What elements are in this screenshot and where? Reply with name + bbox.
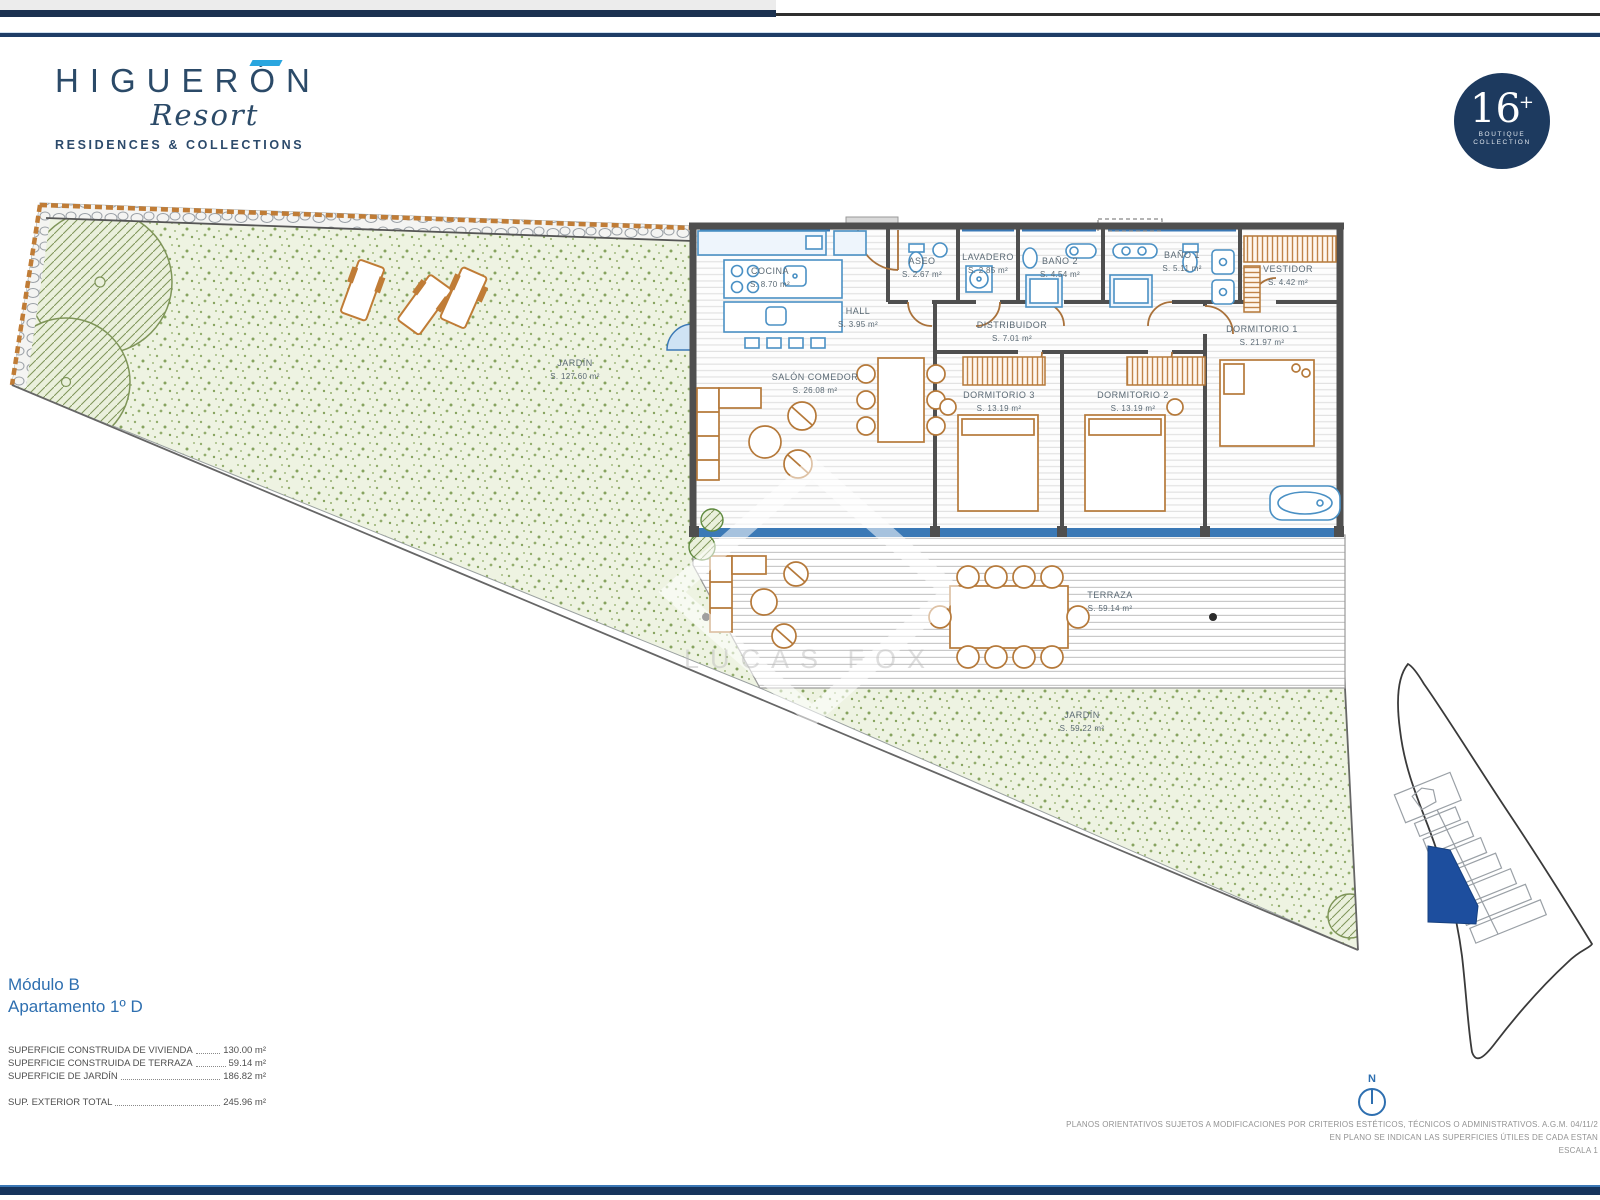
surface-table: SUPERFICIE CONSTRUIDA DE VIVIENDA130.00 … <box>8 1044 266 1109</box>
svg-text:S. 13.19 m²: S. 13.19 m² <box>977 404 1022 413</box>
window-top-strip <box>0 0 776 10</box>
surface-total-row: SUP. EXTERIOR TOTAL245.96 m² <box>8 1096 266 1109</box>
window-title-bar <box>0 10 776 17</box>
disclaimer-line2: EN PLANO SE INDICAN LAS SUPERFICIES ÚTIL… <box>1038 1131 1598 1144</box>
tree-icon <box>1328 894 1372 938</box>
apartment: COCINA S. 8.70 m² HALL S. 3.95 m² ASEO S… <box>667 217 1344 537</box>
svg-text:S. 4.42 m²: S. 4.42 m² <box>1268 278 1308 287</box>
title-block: Módulo B Apartamento 1º D SUPERFICIE CON… <box>8 974 288 1109</box>
brand-script: Resort <box>55 98 355 132</box>
room-label-dormitorio2: DORMITORIO 2 <box>1097 390 1169 400</box>
svg-text:S. 13.19 m²: S. 13.19 m² <box>1111 404 1156 413</box>
scale-label: ESCALA 1 <box>1038 1144 1598 1157</box>
garden-left: JARDÍN S. 127.60 m² <box>2 203 760 688</box>
kitchen-fixtures <box>698 231 866 348</box>
surface-row: SUPERFICIE CONSTRUIDA DE VIVIENDA130.00 … <box>8 1044 266 1057</box>
north-arrow-icon: N <box>1359 1073 1385 1115</box>
disclaimer-line1: PLANOS ORIENTATIVOS SUJETOS A MODIFICACI… <box>1038 1118 1598 1131</box>
brand-tagline: RESIDENCES & COLLECTIONS <box>55 138 375 152</box>
svg-text:N: N <box>1368 1073 1376 1085</box>
room-label-lavadero: LAVADERO <box>962 252 1014 262</box>
surface-row: SUPERFICIE CONSTRUIDA DE TERRAZA59.14 m² <box>8 1057 266 1070</box>
svg-text:S. 21.97 m²: S. 21.97 m² <box>1240 338 1285 347</box>
room-label-cocina: COCINA <box>751 266 789 276</box>
brand-title: HIGUERÓN <box>55 62 375 100</box>
badge-line2: COLLECTION <box>1454 139 1550 147</box>
badge-plus: + <box>1519 92 1534 113</box>
room-label-jardin-left: JARDÍN <box>557 358 593 368</box>
room-label-distribuidor: DISTRIBUIDOR <box>977 320 1048 330</box>
garden-bottom: JARDÍN S. 59.22 m² <box>760 688 1372 950</box>
header-rule <box>0 32 1600 37</box>
svg-text:S. 2.85 m²: S. 2.85 m² <box>968 266 1008 275</box>
bottom-bar <box>0 1185 1600 1195</box>
badge-number: 16 <box>1470 86 1521 132</box>
svg-text:S. 7.01 m²: S. 7.01 m² <box>992 334 1032 343</box>
svg-text:S. 5.11 m²: S. 5.11 m² <box>1162 264 1201 273</box>
glazing-band <box>690 528 1343 537</box>
plan-disclaimer: PLANOS ORIENTATIVOS SUJETOS A MODIFICACI… <box>1038 1118 1598 1157</box>
room-area-jardin-left: S. 127.60 m² <box>550 372 599 381</box>
svg-text:S. 2.67 m²: S. 2.67 m² <box>902 270 942 279</box>
window-edge-line <box>776 13 1600 16</box>
badge-line1: BOUTIQUE <box>1454 131 1550 139</box>
svg-text:S. 3.95 m²: S. 3.95 m² <box>838 320 878 329</box>
plant-icon <box>701 509 723 531</box>
svg-text:S. 4.54 m²: S. 4.54 m² <box>1040 270 1080 279</box>
module-title: Módulo B <box>8 974 288 996</box>
brand-logo: HIGUERÓN Resort RESIDENCES & COLLECTIONS <box>55 62 375 152</box>
room-label-dormitorio1: DORMITORIO 1 <box>1226 324 1298 334</box>
room-label-jardin-bottom: JARDÍN <box>1064 710 1100 720</box>
room-label-bano1: BAÑO 1 <box>1164 250 1200 260</box>
room-label-terraza: TERRAZA <box>1087 590 1133 600</box>
svg-text:S. 26.08 m²: S. 26.08 m² <box>793 386 838 395</box>
room-label-hall: HALL <box>846 306 871 316</box>
apartment-title: Apartamento 1º D <box>8 996 288 1018</box>
room-label-aseo: ASEO <box>908 256 935 266</box>
room-area-jardin-bottom: S. 59.22 m² <box>1060 724 1105 733</box>
surface-row: SUPERFICIE DE JARDÍN186.82 m² <box>8 1070 266 1083</box>
site-plan-inset <box>1394 664 1592 1058</box>
room-label-salon: SALÓN COMEDOR <box>772 372 859 382</box>
deck-drain-icon <box>1209 613 1217 621</box>
logo-accent-dash <box>249 60 282 66</box>
room-label-vestidor: VESTIDOR <box>1263 264 1313 274</box>
collection-badge: 16+ BOUTIQUE COLLECTION <box>1454 73 1550 169</box>
watermark-text: LUCAS FOX <box>684 644 936 674</box>
svg-text:S. 8.70 m²: S. 8.70 m² <box>750 280 790 289</box>
room-label-dormitorio3: DORMITORIO 3 <box>963 390 1035 400</box>
room-area-terraza: S. 59.14 m² <box>1088 604 1133 613</box>
room-label-bano2: BAÑO 2 <box>1042 256 1078 266</box>
